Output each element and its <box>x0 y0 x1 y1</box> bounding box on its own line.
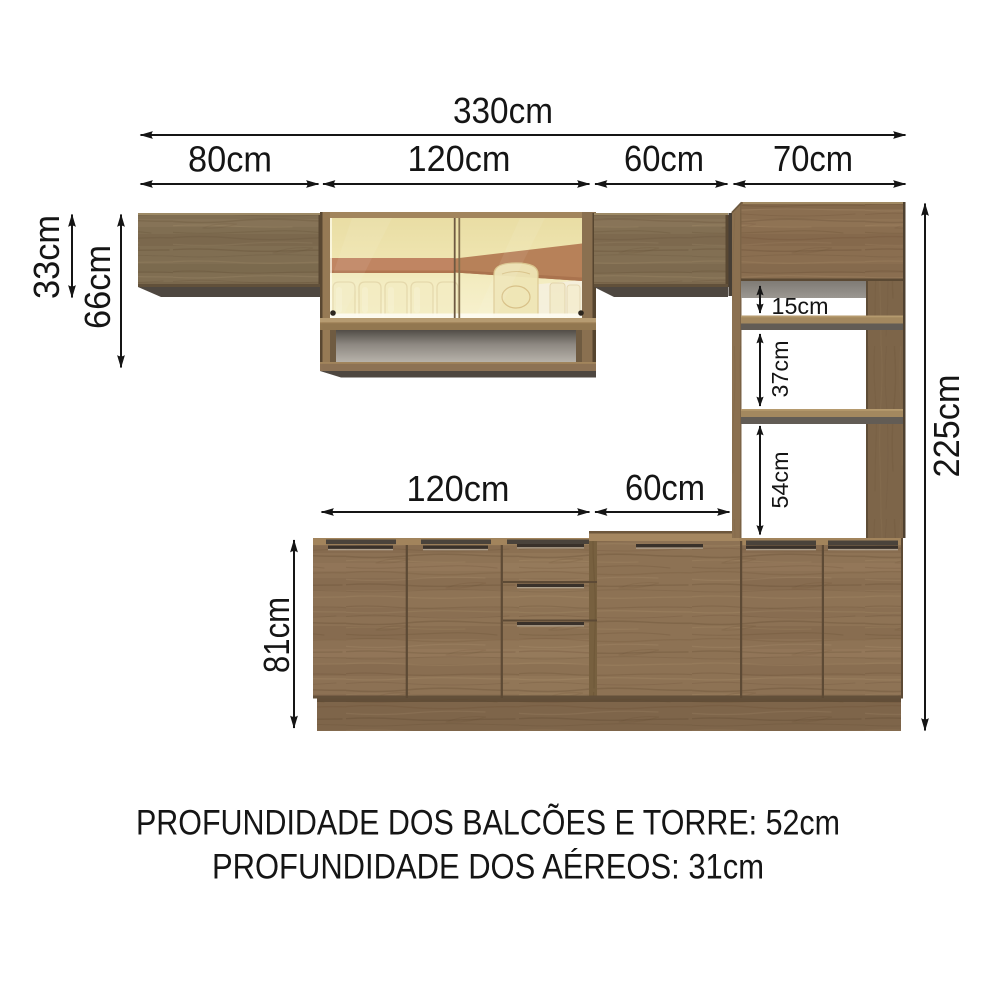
svg-text:54cm: 54cm <box>767 452 793 509</box>
svg-text:120cm: 120cm <box>407 468 510 509</box>
svg-text:PROFUNDIDADE DOS AÉREOS: 31cm: PROFUNDIDADE DOS AÉREOS: 31cm <box>212 848 764 887</box>
svg-text:33cm: 33cm <box>26 215 67 299</box>
svg-text:66cm: 66cm <box>77 245 118 329</box>
svg-text:PROFUNDIDADE DOS BALCÕES E TOR: PROFUNDIDADE DOS BALCÕES E TORRE: 52cm <box>136 803 840 843</box>
svg-text:70cm: 70cm <box>773 138 853 179</box>
svg-text:15cm: 15cm <box>772 293 829 319</box>
svg-text:330cm: 330cm <box>453 90 553 131</box>
svg-text:120cm: 120cm <box>408 138 511 179</box>
svg-text:80cm: 80cm <box>188 139 272 180</box>
svg-text:37cm: 37cm <box>767 341 793 398</box>
svg-text:60cm: 60cm <box>624 138 704 179</box>
svg-text:60cm: 60cm <box>625 467 705 508</box>
svg-text:81cm: 81cm <box>256 597 297 673</box>
svg-text:225cm: 225cm <box>926 375 967 478</box>
